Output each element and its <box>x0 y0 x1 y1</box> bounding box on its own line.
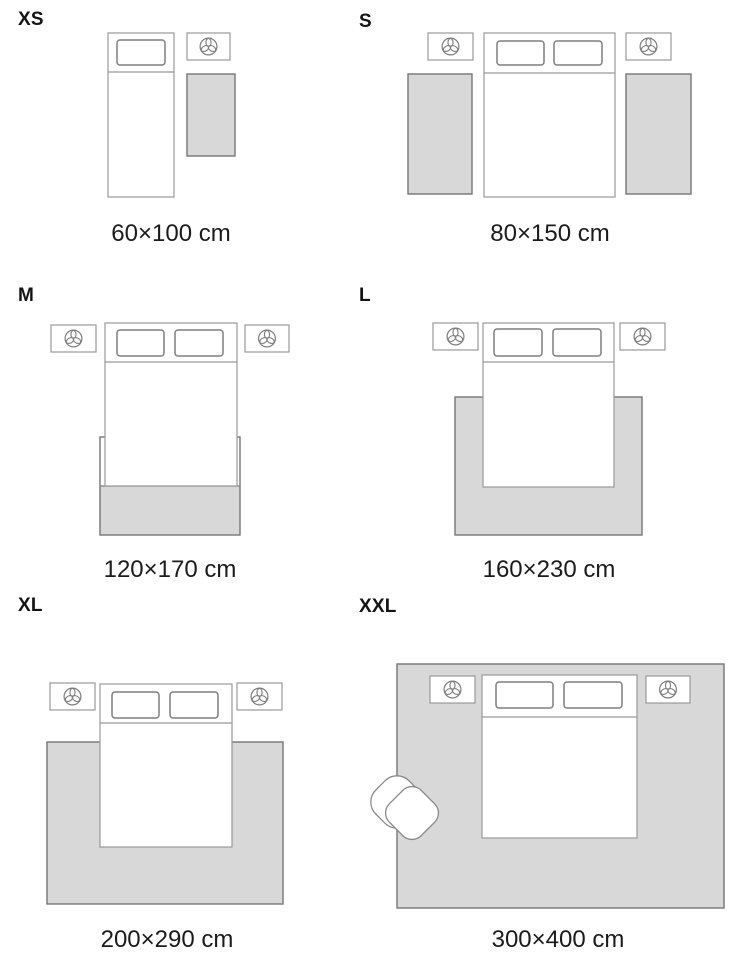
pillow <box>553 329 601 356</box>
dimension-label-xs: 60×100 cm <box>61 221 281 247</box>
nightstand-icon <box>626 33 671 60</box>
plant-icon <box>444 681 461 698</box>
dimension-label-xxl: 300×400 cm <box>448 927 668 953</box>
pillow <box>175 330 223 356</box>
bed-icon <box>100 684 232 847</box>
bed-icon <box>484 33 615 197</box>
size-diagram-xs <box>108 33 235 197</box>
nightstand-icon <box>428 33 473 60</box>
bed-icon <box>108 33 174 197</box>
plant-icon <box>442 38 459 55</box>
pillow <box>496 682 553 708</box>
plant-icon <box>200 38 217 55</box>
rug <box>100 486 240 535</box>
dimension-label-s: 80×150 cm <box>440 221 660 247</box>
pillow <box>112 692 159 718</box>
size-diagram-xxl <box>364 664 724 908</box>
nightstand-icon <box>51 325 96 352</box>
nightstand-icon <box>187 33 230 60</box>
plant-icon <box>259 330 276 347</box>
nightstand-icon <box>430 676 475 703</box>
size-label-xxl: XXL <box>359 597 397 618</box>
dimension-label-m: 120×170 cm <box>60 557 280 583</box>
rug-size-guide: XS S M L XL XXL 60×100 cm 80×150 cm 120×… <box>0 0 740 960</box>
plant-icon <box>634 328 651 345</box>
size-diagram-m <box>51 323 289 535</box>
plant-icon <box>640 38 657 55</box>
rug <box>408 74 472 194</box>
plant-icon <box>251 688 268 705</box>
rug <box>626 74 691 194</box>
bed-icon <box>483 323 614 487</box>
dimension-label-xl: 200×290 cm <box>57 927 277 953</box>
size-diagram-xl <box>47 683 283 904</box>
nightstand-icon <box>620 323 665 350</box>
plant-icon <box>447 328 464 345</box>
plant-icon <box>65 330 82 347</box>
nightstand-icon <box>50 683 95 710</box>
plant-icon <box>64 688 81 705</box>
size-label-s: S <box>359 12 372 33</box>
pillow <box>117 330 164 356</box>
bed-icon <box>105 323 237 486</box>
pillow <box>564 682 622 708</box>
pillow <box>497 41 544 65</box>
pillow <box>494 329 542 356</box>
dimension-label-l: 160×230 cm <box>439 557 659 583</box>
nightstand-icon <box>646 676 690 703</box>
nightstand-icon <box>237 683 282 710</box>
size-label-xl: XL <box>18 596 43 617</box>
size-diagrams <box>0 0 740 960</box>
size-label-xs: XS <box>18 10 44 31</box>
size-diagram-s <box>408 33 691 197</box>
nightstand-icon <box>433 323 478 350</box>
plant-icon <box>660 681 677 698</box>
nightstand-icon <box>245 325 289 352</box>
rug <box>187 74 235 156</box>
pillow <box>117 40 165 65</box>
size-diagram-l <box>433 323 665 535</box>
bed-icon <box>482 675 637 838</box>
pillow <box>170 692 218 718</box>
size-label-l: L <box>359 286 371 307</box>
size-label-m: M <box>18 286 34 307</box>
pillow <box>554 41 602 65</box>
